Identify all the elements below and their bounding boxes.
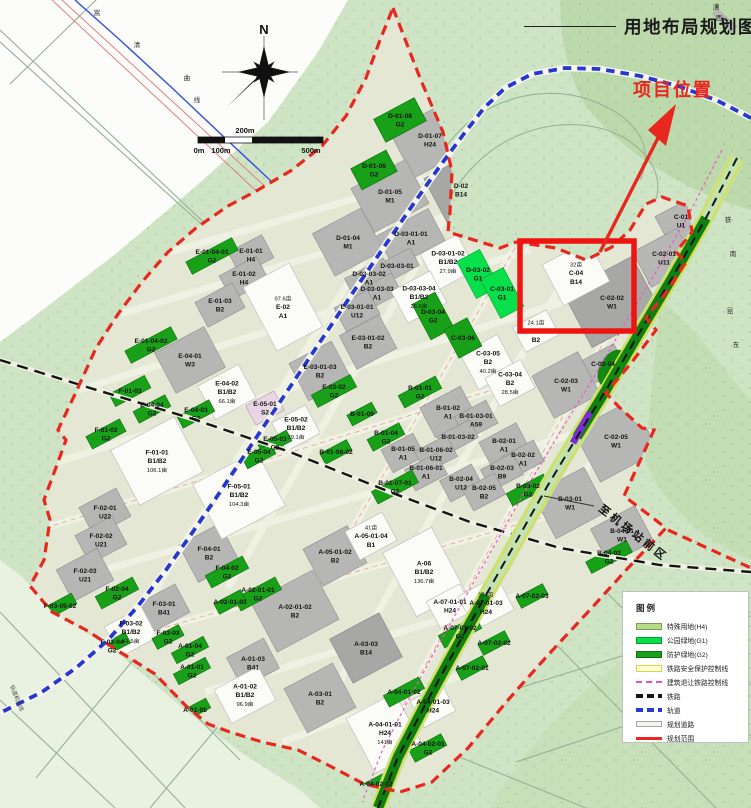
parcel-label: B14 xyxy=(455,192,467,199)
parcel-label: F-02-04 xyxy=(105,586,128,593)
parcel-label: D-03-02 xyxy=(466,267,490,274)
parcel-label: 39.1亩 xyxy=(287,433,304,441)
parcel-label: E-03-01-03 xyxy=(304,364,337,371)
map-char-label: 铁 xyxy=(725,215,732,224)
parcel-label: B1/B2 xyxy=(218,389,237,396)
parcel-label: U22 xyxy=(99,514,111,521)
legend-swatch xyxy=(636,694,662,698)
map-char-label: 清 xyxy=(134,40,141,49)
legend-item: 规划道路 xyxy=(636,719,742,729)
parcel-label: B-01-02 xyxy=(436,405,460,412)
parcel-label: G2 xyxy=(148,411,157,418)
parcel-label: 97.6亩 xyxy=(274,295,291,303)
legend-item: 建筑退让铁路控制线 xyxy=(636,677,742,687)
parcel-label: F-01-03 xyxy=(118,388,141,395)
parcel-label: B14 xyxy=(360,650,372,657)
scale-label: 500m xyxy=(301,146,321,155)
parcel-label: B-02-04 xyxy=(449,476,473,483)
parcel-label: H24 xyxy=(424,142,436,149)
parcel-label: F-03-04 xyxy=(100,639,123,646)
parcel-label: G2 xyxy=(370,172,379,179)
parcel-label: W1 xyxy=(611,443,621,450)
parcel-label: E-01-01 xyxy=(239,248,263,255)
parcel-label: B-02-03 xyxy=(490,465,514,472)
parcel-label: A59 xyxy=(470,422,482,429)
parcel-label: B41 xyxy=(158,610,170,617)
parcel-label: 141亩 xyxy=(377,738,393,746)
legend-item-label: 铁路 xyxy=(667,691,681,701)
parcel-label: F-02-01 xyxy=(93,505,116,512)
parcel-label: A-04-01-03 xyxy=(416,699,450,706)
parcel-label: H4 xyxy=(247,257,256,264)
parcel-label: E-03-01-02 xyxy=(352,335,385,342)
legend-swatch xyxy=(636,721,662,727)
parcel-label: B-02-02 xyxy=(511,452,535,459)
parcel-label: A-03-01 xyxy=(308,691,332,698)
legend-item-label: 防护绿地(G2) xyxy=(667,649,708,659)
parcel-label: D-01-06 xyxy=(362,163,386,170)
parcel-label: U12 xyxy=(455,485,467,492)
parcel-label: G2 xyxy=(271,445,280,452)
parcel-label: 96.9亩 xyxy=(236,700,253,708)
parcel-label: A1 xyxy=(444,414,453,421)
legend-swatch xyxy=(636,681,662,683)
legend-item: 铁路安全保护控制线 xyxy=(636,663,742,673)
parcel-label: F-03-01 xyxy=(152,601,175,608)
parcel-label: D-03-01-01 xyxy=(394,231,428,238)
parcel-label: D-03-04 xyxy=(421,309,445,316)
parcel-label: C-02-01 xyxy=(652,251,676,258)
parcel-label: A-07-01-02 xyxy=(443,625,477,632)
parcel-label: M1 xyxy=(385,198,394,205)
scale-label: 200m xyxy=(235,126,255,135)
parcel-label: B-01-04 xyxy=(374,430,398,437)
parcel-label: B2 xyxy=(532,337,541,344)
parcel-label: D-03-03-02 xyxy=(352,271,386,278)
legend-panel: 图例 特殊用地(H4)公园绿地(G1)防护绿地(G2)铁路安全保护控制线建筑退让… xyxy=(622,591,749,743)
parcel-label: A-01-01 xyxy=(180,664,204,671)
parcel-label: B14 xyxy=(570,279,582,286)
parcel-label: D-01-07 xyxy=(418,133,442,140)
parcel-label: G2 xyxy=(605,559,614,566)
parcel-label: A-07-01-01 xyxy=(433,599,467,606)
parcel-label: B-01-08-02 xyxy=(319,449,353,456)
legend-item-label: 铁路安全保护控制线 xyxy=(667,663,728,673)
title-leader-line xyxy=(524,26,616,27)
parcel-label: 174亩 xyxy=(478,591,494,599)
parcel-label: B1/B2 xyxy=(439,259,458,266)
parcel-label: A-05-01-04 xyxy=(354,533,388,540)
parcel-label: G2 xyxy=(223,574,232,581)
parcel-label: G2 xyxy=(108,648,117,655)
parcel-label: D-03-03-03 xyxy=(360,286,394,293)
parcel-label: B1/B2 xyxy=(148,458,167,465)
parcel-label: F-04-02 xyxy=(215,565,238,572)
parcel-label: U21 xyxy=(79,577,91,584)
parcel-label: E-01-04-01 xyxy=(196,249,229,256)
parcel-label: W3 xyxy=(185,362,195,369)
parcel-label: H24 xyxy=(379,730,391,737)
parcel-label: B2 xyxy=(316,373,325,380)
parcel-label: D-01-04 xyxy=(336,235,360,242)
parcel-label: A-07-02-03 xyxy=(515,593,549,600)
parcel-label: G2 xyxy=(330,393,339,400)
parcel-label: F-02-02 xyxy=(89,533,112,540)
map-char-label: 漕 xyxy=(713,2,720,11)
parcel-label: G2 xyxy=(208,258,217,265)
parcel-label: B-02-05 xyxy=(472,485,496,492)
parcel-label: B-01-06-02 xyxy=(419,447,453,454)
map-title: 用地布局规划图 xyxy=(524,14,751,39)
legend-item-label: 公园绿地(G1) xyxy=(667,635,708,645)
parcel-label: U12 xyxy=(351,313,363,320)
parcel-label: G2 xyxy=(102,436,111,443)
legend-swatch xyxy=(636,708,662,712)
parcel-label: E-03-01-01 xyxy=(341,304,374,311)
parcel-label: A-07-01-03 xyxy=(469,600,503,607)
parcel-label: A-07-02-01 xyxy=(455,665,489,672)
parcel-label: C-02-03 xyxy=(554,378,578,385)
parcel-label: 41.5亩 xyxy=(122,637,139,645)
parcel-label: 106.1亩 xyxy=(147,466,168,474)
parcel-label: A1 xyxy=(279,313,288,320)
parcel-label: G2 xyxy=(456,634,465,641)
parcel-label: B41 xyxy=(247,665,259,672)
map-char-label: 南 xyxy=(730,249,737,258)
parcel-label: B2 xyxy=(316,700,325,707)
parcel-label: G2 xyxy=(192,416,201,423)
parcel-label: B-01-05 xyxy=(391,446,415,453)
parcel-label: C-03-01 xyxy=(490,286,514,293)
scale-label: 100m xyxy=(211,146,231,155)
planning-map: D-01-08G2D-01-07H24D-01-06G2D-01-05M1D-0… xyxy=(0,0,751,808)
parcel-label: G2 xyxy=(186,652,195,659)
parcel-label: 66.1亩 xyxy=(218,397,235,405)
parcel-label: G2 xyxy=(255,458,264,465)
parcel-label: C-02-05 xyxy=(604,434,628,441)
parcel-label: G2 xyxy=(164,639,173,646)
scale-label: 0m xyxy=(194,146,205,155)
parcel-label: A1 xyxy=(373,295,382,302)
map-char-label: 昆 xyxy=(727,307,734,315)
parcel-label: B-03-02 xyxy=(516,483,540,490)
parcel-label: D-02 xyxy=(454,183,469,190)
page-title: 用地布局规划图 xyxy=(624,14,751,39)
parcel-label: B1/B2 xyxy=(230,492,249,499)
legend-swatch xyxy=(636,665,662,672)
parcel-label: B-01-03-02 xyxy=(441,434,475,441)
parcel-label: A-01-03 xyxy=(241,656,265,663)
parcel-label: E-05-03 xyxy=(263,436,287,443)
legend-item: 公园绿地(G1) xyxy=(636,635,742,645)
parcel-label: B-04-02 xyxy=(597,550,621,557)
parcel-label: E-04-03 xyxy=(184,407,208,414)
map-char-label: 线 xyxy=(194,95,201,104)
parcel-label: A-04-02-01 xyxy=(411,741,445,748)
legend-item-label: 特殊用地(H4) xyxy=(667,621,707,631)
legend-item-label: 建筑退让铁路控制线 xyxy=(667,677,728,687)
legend-item-label: 规划道路 xyxy=(667,719,694,729)
map-char-label: 曲 xyxy=(184,73,191,82)
parcel-label: G1 xyxy=(474,276,483,283)
project-location-label: 项目位置 xyxy=(633,76,713,102)
parcel-label: W1 xyxy=(561,387,571,394)
parcel-label: B1/B2 xyxy=(410,294,429,301)
parcel-label: F-03-05-02 xyxy=(44,603,77,610)
parcel-label: C-02-04 xyxy=(591,361,615,368)
parcel-label: 28.5亩 xyxy=(501,388,518,396)
parcel-label: A-02-01-01 xyxy=(241,587,275,594)
parcel-label: U1 xyxy=(677,223,686,230)
parcel-label: A-06 xyxy=(417,561,432,568)
parcel-label: E-05-01 xyxy=(253,401,277,408)
parcel-label: G2 xyxy=(429,318,438,325)
parcel-label: C-03-05 xyxy=(476,351,500,358)
parcel-label: B2 xyxy=(205,555,214,562)
parcel-label: 40.2亩 xyxy=(479,367,496,375)
parcel-label: E-02 xyxy=(276,304,290,311)
parcel-label: F-03-03 xyxy=(156,630,179,637)
parcel-label: A1 xyxy=(399,455,408,462)
parcel-label: W1 xyxy=(565,505,575,512)
parcel-label: E-04-02 xyxy=(215,381,239,388)
parcel-label: G2 xyxy=(382,439,391,446)
legend-swatch xyxy=(636,637,662,644)
parcel-label: G2 xyxy=(396,122,405,129)
legend-title: 图例 xyxy=(636,602,742,614)
parcel-label: 136.7亩 xyxy=(414,577,435,585)
parcel-label: B-01-01 xyxy=(408,385,432,392)
parcel-label: E-01-02 xyxy=(232,271,256,278)
parcel-label: A-04-01-02 xyxy=(387,689,421,696)
parcel-label: E-03-02 xyxy=(322,384,346,391)
parcel-label: 32亩 xyxy=(570,261,582,269)
parcel-label: C-02-02 xyxy=(600,295,624,302)
parcel-label: F-04-01 xyxy=(197,546,220,553)
parcel-label: S2 xyxy=(261,410,269,417)
parcel-label: B-02-01 xyxy=(492,438,516,445)
parcel-label: B2 xyxy=(484,359,493,366)
parcel-label: H24 xyxy=(480,609,492,616)
legend-item: 铁路 xyxy=(636,691,742,701)
north-label: N xyxy=(259,22,268,37)
parcel-label: 41亩 xyxy=(365,524,377,532)
parcel-label: A-03-03 xyxy=(354,641,378,648)
parcel-label: B1/B2 xyxy=(287,425,306,432)
parcel-label: G2 xyxy=(524,492,533,499)
parcel-label: E-05-04 xyxy=(247,449,271,456)
parcel-label: B-01-03-01 xyxy=(459,413,493,420)
parcel-label: 104.3亩 xyxy=(229,500,250,508)
parcel-label: G2 xyxy=(113,595,122,602)
parcel-label: F-03-02 xyxy=(119,621,142,628)
legend-swatch xyxy=(636,651,662,658)
parcel-label: D-01-05 xyxy=(378,189,402,196)
legend-item: 轨道 xyxy=(636,705,742,715)
parcel-label: A-01-05 xyxy=(183,707,207,714)
parcel-label: F-01-02 xyxy=(94,427,117,434)
parcel-label: G2 xyxy=(424,750,433,757)
parcel-label: G2 xyxy=(416,394,425,401)
parcel-label: B1/B2 xyxy=(415,569,434,576)
parcel-label: F-01-01 xyxy=(145,450,168,457)
parcel-label: U21 xyxy=(95,542,107,549)
parcel-label: G2 xyxy=(147,347,156,354)
parcel-label: B1/B2 xyxy=(236,692,255,699)
legend-item: 规划范围 xyxy=(636,733,742,743)
parcel-label: H4 xyxy=(240,280,249,287)
legend-swatch xyxy=(636,623,662,630)
parcel-label: F-05-01 xyxy=(227,484,250,491)
parcel-label: A-04-01-01 xyxy=(368,722,402,729)
parcel-label: D-03-03-01 xyxy=(380,263,414,270)
parcel-label: D-03-01-02 xyxy=(431,251,465,258)
parcel-label: E-01-03 xyxy=(208,298,232,305)
parcel-label: B2 xyxy=(216,307,225,314)
parcel-label: 24.1亩 xyxy=(527,319,544,327)
parcel-label: W1 xyxy=(617,537,627,544)
parcel-label: A1 xyxy=(422,474,431,481)
parcel-label: C-01 xyxy=(674,214,689,221)
parcel-label: C-03-04 xyxy=(498,372,522,379)
parcel-label: B2 xyxy=(364,344,373,351)
parcel-label: B-01-07-01 xyxy=(378,480,412,487)
parcel-label: H24 xyxy=(427,708,439,715)
parcel-label: C-04 xyxy=(569,270,584,277)
legend-item: 特殊用地(H4) xyxy=(636,621,742,631)
legend-swatch xyxy=(636,737,662,740)
legend-item: 防护绿地(G2) xyxy=(636,649,742,659)
parcel-label: B2 xyxy=(480,494,489,501)
parcel-label: G1 xyxy=(498,295,507,302)
parcel-label: G2 xyxy=(254,596,263,603)
parcel-label: B2 xyxy=(291,613,300,620)
parcel-label: D-03-03-04 xyxy=(402,286,436,293)
parcel-label: A-07-02-02 xyxy=(477,640,511,647)
parcel-label: C-03-06 xyxy=(451,335,475,342)
parcel-label: A-05-01-02 xyxy=(318,549,352,556)
legend-item-label: 轨道 xyxy=(667,705,681,715)
parcel-label: A1 xyxy=(519,461,528,468)
parcel-label: B2 xyxy=(331,558,340,565)
parcel-label: E-05-02 xyxy=(284,417,308,424)
parcel-label: A-02-01-03 xyxy=(213,599,247,606)
parcel-label: U12 xyxy=(430,456,442,463)
parcel-label: W1 xyxy=(607,304,617,311)
parcel-label: G2 xyxy=(188,673,197,680)
parcel-label: B1/B2 xyxy=(122,629,141,636)
parcel-label: U11 xyxy=(658,260,670,267)
parcel-label: B9 xyxy=(498,474,507,481)
legend-items: 特殊用地(H4)公园绿地(G1)防护绿地(G2)铁路安全保护控制线建筑退让铁路控… xyxy=(636,621,742,743)
parcel-label: E-04-04 xyxy=(140,402,164,409)
parcel-label: E-01-04-02 xyxy=(135,338,168,345)
parcel-label: A-02-01-02 xyxy=(278,604,312,611)
map-char-label: 嵩 xyxy=(94,9,101,17)
parcel-label: G2 xyxy=(391,489,400,496)
parcel-label: F-02-03 xyxy=(73,568,96,575)
map-char-label: 东 xyxy=(733,340,740,349)
parcel-label: H24 xyxy=(444,608,456,615)
parcel-label: B-01-09 xyxy=(350,411,374,418)
parcel-label: A1 xyxy=(500,447,509,454)
parcel-label: B1 xyxy=(367,542,376,549)
parcel-label: 27.9亩 xyxy=(439,267,456,275)
parcel-label: M1 xyxy=(343,244,352,251)
parcel-label: A-04-02-02 xyxy=(359,781,393,788)
parcel-label: E-04-01 xyxy=(178,353,202,360)
parcel-label: B2 xyxy=(506,380,515,387)
parcel-label: D-01-08 xyxy=(388,113,412,120)
parcel-label: A-01-02 xyxy=(233,684,257,691)
parcel-label: A1 xyxy=(407,240,416,247)
parcel-label: B-01-06-01 xyxy=(409,465,443,472)
legend-item-label: 规划范围 xyxy=(667,733,694,743)
parcel-label: A-01-04 xyxy=(178,643,202,650)
